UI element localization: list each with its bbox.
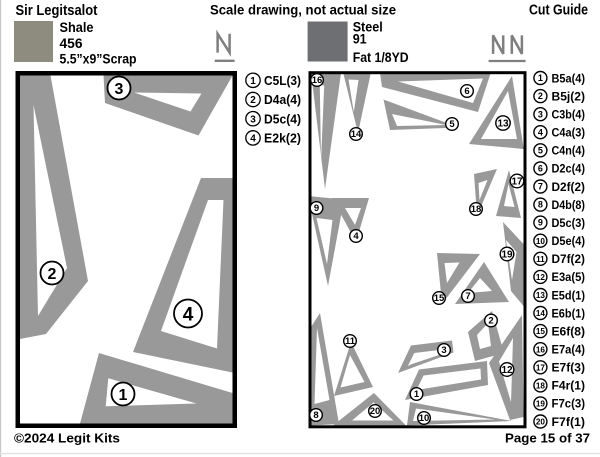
svg-text:Sir Legitsalot: Sir Legitsalot <box>16 3 98 19</box>
svg-text:4: 4 <box>250 134 256 145</box>
svg-text:1: 1 <box>538 73 543 83</box>
svg-text:B5a(4): B5a(4) <box>552 71 586 85</box>
svg-text:15: 15 <box>536 327 546 336</box>
svg-text:C4a(3): C4a(3) <box>552 126 586 140</box>
svg-text:4: 4 <box>538 127 543 137</box>
svg-text:18: 18 <box>536 382 546 391</box>
svg-text:D5e(4): D5e(4) <box>552 234 586 248</box>
svg-text:8: 8 <box>313 410 318 421</box>
svg-text:2: 2 <box>488 316 493 327</box>
svg-text:Scale drawing, not actual size: Scale drawing, not actual size <box>210 2 396 18</box>
svg-text:1: 1 <box>250 76 256 87</box>
svg-text:C5L(3): C5L(3) <box>264 74 301 88</box>
svg-text:456: 456 <box>60 35 83 51</box>
svg-text:D5c(4): D5c(4) <box>264 112 301 126</box>
svg-text:1: 1 <box>119 387 128 404</box>
svg-text:18: 18 <box>471 204 482 215</box>
svg-text:E7a(4): E7a(4) <box>552 343 586 357</box>
svg-text:12: 12 <box>536 273 546 282</box>
svg-text:3: 3 <box>115 81 124 98</box>
svg-text:E6f(8): E6f(8) <box>552 324 586 338</box>
svg-text:13: 13 <box>497 119 509 130</box>
svg-text:10: 10 <box>536 237 546 246</box>
svg-text:Page 15 of 37: Page 15 of 37 <box>505 431 590 446</box>
svg-text:F7c(3): F7c(3) <box>552 397 586 411</box>
svg-text:2: 2 <box>538 91 543 101</box>
svg-text:4: 4 <box>353 231 359 242</box>
svg-text:5: 5 <box>538 145 543 155</box>
svg-text:19: 19 <box>501 250 513 261</box>
svg-text:F4r(1): F4r(1) <box>552 379 586 393</box>
svg-text:7: 7 <box>465 291 470 302</box>
svg-text:16: 16 <box>312 75 323 86</box>
svg-text:7: 7 <box>538 182 543 192</box>
svg-text:E3a(5): E3a(5) <box>552 270 586 284</box>
svg-text:15: 15 <box>434 293 445 304</box>
svg-text:D4a(4): D4a(4) <box>264 93 301 107</box>
svg-text:11: 11 <box>536 255 545 264</box>
svg-text:19: 19 <box>536 400 546 409</box>
svg-text:6: 6 <box>538 164 543 174</box>
svg-text:6: 6 <box>464 86 469 97</box>
svg-text:C3b(4): C3b(4) <box>552 108 586 122</box>
svg-text:17: 17 <box>511 177 523 188</box>
svg-text:Cut Guide: Cut Guide <box>529 3 588 19</box>
svg-text:2: 2 <box>48 266 57 283</box>
svg-text:12: 12 <box>501 365 513 376</box>
svg-text:E5d(1): E5d(1) <box>552 288 586 302</box>
svg-text:4: 4 <box>183 305 194 326</box>
svg-text:E7f(3): E7f(3) <box>552 361 586 375</box>
svg-text:E2k(2): E2k(2) <box>264 132 301 146</box>
svg-text:F7f(1): F7f(1) <box>552 415 586 429</box>
svg-text:5: 5 <box>449 119 455 130</box>
svg-text:9: 9 <box>538 218 543 228</box>
svg-text:5.5”x9”Scrap: 5.5”x9”Scrap <box>60 51 137 67</box>
svg-text:8: 8 <box>538 200 543 210</box>
svg-text:Fat 1/8YD: Fat 1/8YD <box>353 50 409 65</box>
svg-text:Shale: Shale <box>60 19 94 35</box>
svg-text:10: 10 <box>419 413 430 424</box>
svg-text:13: 13 <box>536 291 546 300</box>
svg-text:17: 17 <box>536 363 546 372</box>
svg-text:3: 3 <box>250 114 256 125</box>
svg-text:B5j(2): B5j(2) <box>552 89 586 103</box>
svg-text:3: 3 <box>538 109 543 119</box>
svg-text:14: 14 <box>536 309 546 318</box>
svg-text:D2c(4): D2c(4) <box>552 162 586 176</box>
svg-text:D4b(8): D4b(8) <box>552 198 586 212</box>
svg-text:1: 1 <box>414 389 420 400</box>
svg-text:20: 20 <box>370 406 381 417</box>
svg-text:16: 16 <box>536 345 546 354</box>
svg-text:14: 14 <box>351 129 362 140</box>
svg-text:11: 11 <box>345 336 356 347</box>
svg-text:20: 20 <box>536 418 546 427</box>
svg-text:E6b(1): E6b(1) <box>552 306 586 320</box>
svg-text:91: 91 <box>353 32 367 47</box>
svg-text:C4n(4): C4n(4) <box>552 144 586 158</box>
svg-text:9: 9 <box>314 203 319 214</box>
svg-text:D5c(3): D5c(3) <box>552 216 586 230</box>
svg-text:D2f(2): D2f(2) <box>552 180 586 194</box>
svg-text:D7f(2): D7f(2) <box>552 252 586 266</box>
svg-text:©2024 Legit Kits: ©2024 Legit Kits <box>14 431 120 446</box>
svg-text:2: 2 <box>250 95 256 106</box>
svg-text:3: 3 <box>441 345 446 356</box>
